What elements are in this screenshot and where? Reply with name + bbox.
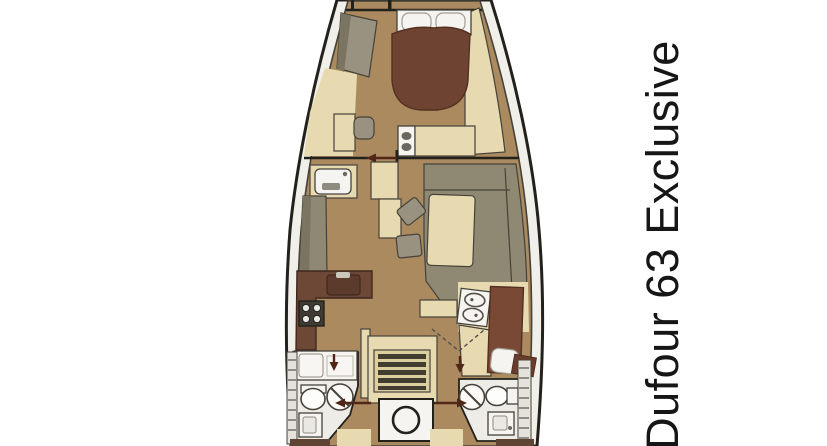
toilet-icon bbox=[301, 389, 325, 410]
stern-locker bbox=[290, 439, 330, 446]
toilet-tank bbox=[507, 388, 518, 404]
boat-floorplan bbox=[0, 0, 827, 446]
floor-patch bbox=[337, 429, 371, 446]
vanity-desk bbox=[334, 114, 355, 151]
engine-compartment bbox=[379, 399, 433, 441]
salon-chair bbox=[396, 234, 422, 258]
stove bbox=[299, 301, 324, 326]
floor-patch bbox=[430, 429, 463, 446]
head-sink bbox=[303, 417, 316, 433]
companionway bbox=[361, 329, 437, 403]
engine-box bbox=[379, 399, 433, 441]
stern-locker bbox=[496, 439, 534, 446]
forward-locker bbox=[398, 126, 415, 156]
locker-hatch bbox=[518, 360, 531, 446]
stair-step bbox=[378, 362, 426, 367]
vanity-sink bbox=[299, 354, 323, 377]
burner-icon bbox=[302, 315, 309, 322]
bow-tick bbox=[351, 0, 354, 10]
model-label: Dufour 63 Exclusive bbox=[637, 40, 689, 446]
vanity-top bbox=[327, 356, 353, 376]
drain-icon bbox=[343, 172, 347, 176]
island-bed bbox=[392, 27, 470, 110]
salon-bench bbox=[420, 300, 457, 317]
burner-icon bbox=[302, 304, 309, 311]
stair-step bbox=[378, 386, 426, 390]
toilet-icon bbox=[486, 387, 508, 406]
double-sink-unit bbox=[457, 288, 491, 326]
locker-detail bbox=[402, 132, 412, 140]
center-cabinet bbox=[371, 162, 398, 199]
burner-icon bbox=[313, 304, 320, 311]
burner-icon bbox=[313, 315, 320, 322]
stair-step bbox=[378, 378, 426, 383]
center-cabinet bbox=[379, 199, 401, 238]
faucet-icon bbox=[336, 272, 350, 278]
stair-step bbox=[378, 354, 426, 359]
faucet-icon bbox=[322, 183, 340, 190]
drain-icon bbox=[508, 426, 512, 430]
head-sink bbox=[493, 416, 507, 430]
locker-detail bbox=[402, 143, 412, 151]
bow-tick bbox=[388, 0, 392, 10]
salon-table bbox=[427, 194, 475, 267]
vanity-stool bbox=[354, 117, 374, 139]
forward-bench bbox=[415, 126, 475, 156]
berth-floor bbox=[459, 325, 491, 376]
stair-step bbox=[378, 370, 426, 375]
page: Dufour 63 Exclusive bbox=[0, 0, 827, 446]
